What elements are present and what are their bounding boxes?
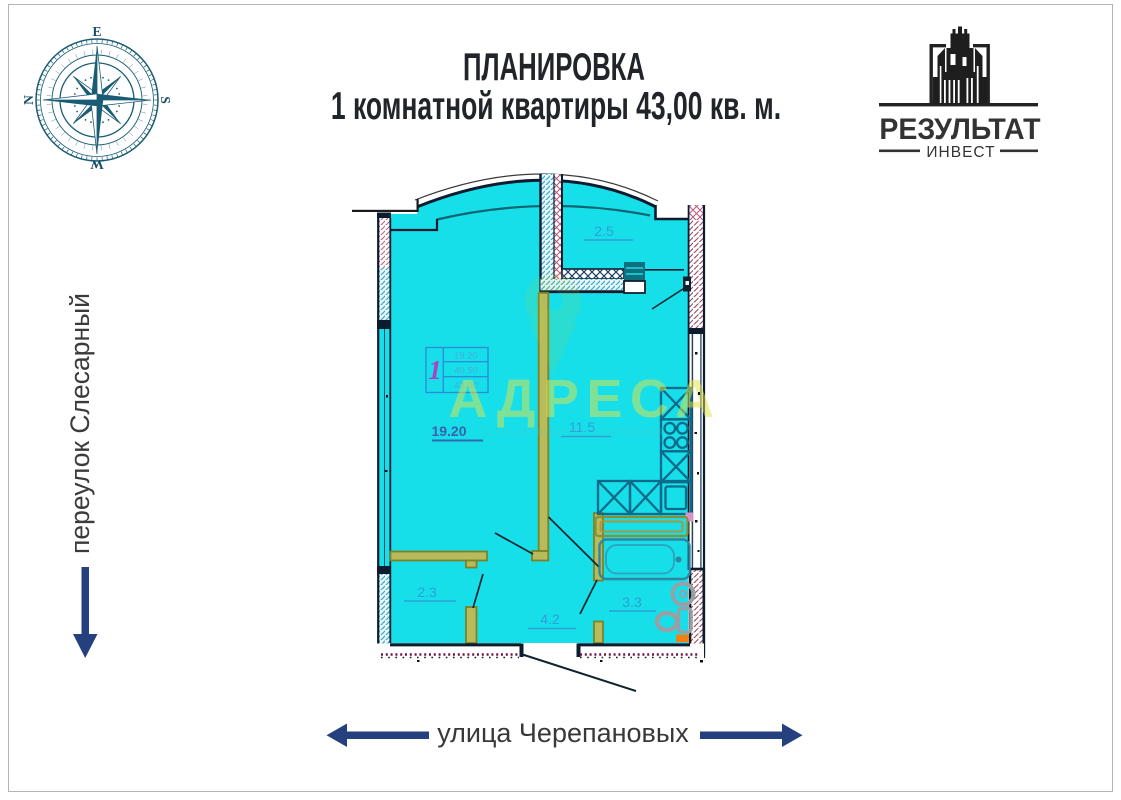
svg-text:ПЛАНИРОВКА: ПЛАНИРОВКА <box>463 46 645 90</box>
svg-text:N: N <box>21 95 36 105</box>
svg-text:переулок Слесарный: переулок Слесарный <box>65 293 95 554</box>
svg-text:S: S <box>158 96 173 104</box>
svg-text:ИНВЕСТ: ИНВЕСТ <box>926 144 995 161</box>
svg-text:4.2: 4.2 <box>540 611 560 627</box>
svg-text:19.20: 19.20 <box>454 351 478 362</box>
svg-text:E: E <box>92 24 101 39</box>
svg-text:2.5: 2.5 <box>594 223 614 239</box>
svg-text:1: 1 <box>428 355 442 385</box>
svg-text:улица Черепановых: улица Черепановых <box>437 718 689 748</box>
svg-text:СТРОИТЕЛЬНАЯ КОМПАНИЯ: СТРОИТЕЛЬНАЯ КОМПАНИЯ <box>485 428 664 439</box>
svg-text:АДРЕСА: АДРЕСА <box>448 369 721 429</box>
svg-text:2.3: 2.3 <box>417 584 437 600</box>
svg-text:W: W <box>90 157 104 172</box>
svg-text:1 комнатной квартиры 43,00 кв.: 1 комнатной квартиры 43,00 кв. м. <box>331 85 781 128</box>
svg-text:3.3: 3.3 <box>622 594 642 610</box>
svg-text:РЕЗУЛЬТАТ: РЕЗУЛЬТАТ <box>879 113 1040 146</box>
